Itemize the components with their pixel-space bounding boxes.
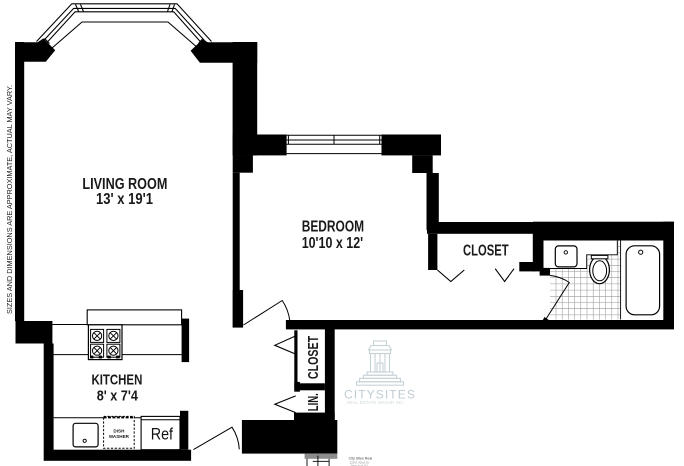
svg-text:REAL ESTATE GROUP, INC.: REAL ESTATE GROUP, INC. bbox=[347, 400, 405, 405]
svg-text:CLOSET: CLOSET bbox=[305, 336, 322, 379]
svg-text:WASHER: WASHER bbox=[109, 434, 130, 439]
svg-text:CLOSET: CLOSET bbox=[463, 242, 509, 259]
svg-text:KITCHEN: KITCHEN bbox=[91, 372, 142, 389]
svg-text:Ref: Ref bbox=[151, 425, 174, 444]
svg-text:SIZES AND DIMENSIONS ARE APPRO: SIZES AND DIMENSIONS ARE APPROXIMATE, AC… bbox=[7, 85, 14, 314]
svg-text:13' x 19'1: 13' x 19'1 bbox=[96, 191, 153, 208]
svg-text:BEDROOM: BEDROOM bbox=[302, 219, 364, 236]
svg-text:10'10 x 12': 10'10 x 12' bbox=[302, 235, 363, 252]
svg-text:8' x 7'4: 8' x 7'4 bbox=[97, 387, 139, 404]
svg-text:LIN.: LIN. bbox=[305, 393, 322, 411]
svg-text:DISH: DISH bbox=[113, 428, 125, 433]
